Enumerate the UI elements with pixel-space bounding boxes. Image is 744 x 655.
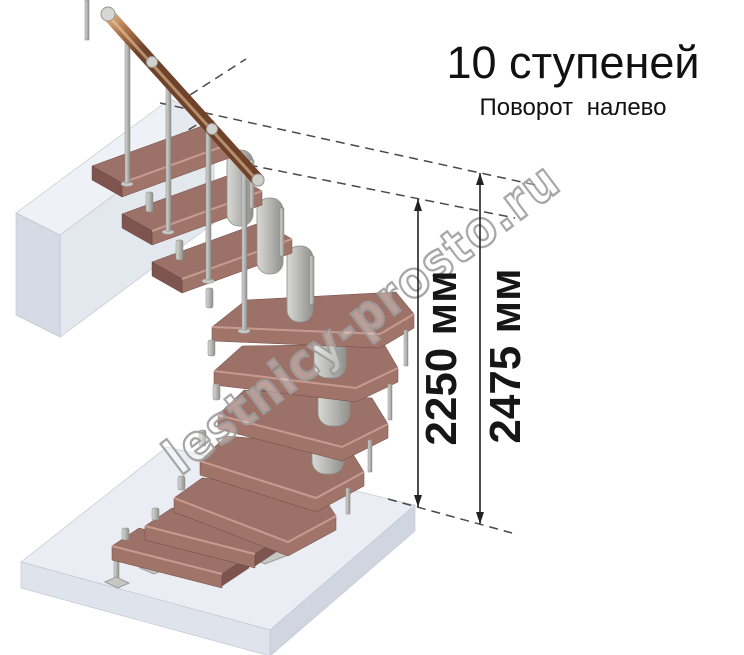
dashed-upper-corner-ray <box>190 59 246 95</box>
baluster <box>206 122 211 280</box>
dimension-label-2250: 2250 мм <box>417 270 466 445</box>
spine-module <box>257 198 283 274</box>
handrail-collar <box>207 124 218 135</box>
arrowhead-up <box>476 173 484 185</box>
dimension-label-2475: 2475 мм <box>481 268 530 443</box>
baluster <box>242 163 247 330</box>
handrail-collar <box>147 57 158 68</box>
title-block: 10 ступеней Поворот налево <box>427 40 719 122</box>
baluster <box>125 36 130 183</box>
turn-direction-subtitle: Поворот налево <box>427 94 719 122</box>
arrowhead-down <box>476 512 484 524</box>
arrowhead-up <box>414 199 422 211</box>
steps-count-title: 10 ступеней <box>427 40 719 85</box>
baluster <box>166 78 171 231</box>
handrail-end-cap <box>101 7 115 21</box>
baluster <box>85 0 89 40</box>
handrail-end-cap <box>252 174 264 186</box>
spine-module <box>287 246 313 322</box>
staircase-diagram: lestnicy-prosto.ru 2250 мм 2475 мм 10 ст… <box>0 0 744 655</box>
